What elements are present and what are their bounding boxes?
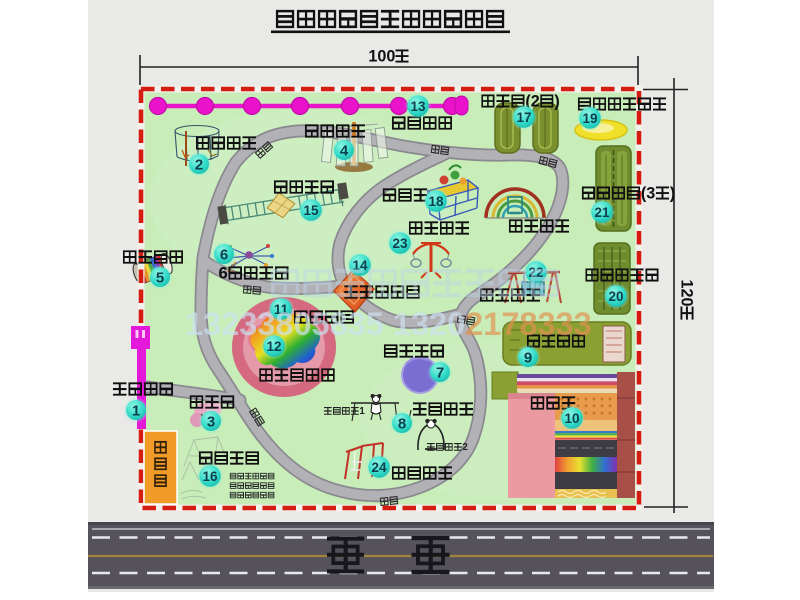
svg-text:19: 19 (582, 111, 597, 126)
svg-text:1: 1 (132, 402, 140, 419)
svg-text:): ) (554, 92, 559, 110)
svg-text:24: 24 (371, 460, 387, 475)
svg-text:4: 4 (340, 142, 349, 159)
svg-text:13: 13 (410, 99, 426, 114)
svg-text:10: 10 (564, 411, 579, 426)
svg-text:5: 5 (156, 269, 164, 286)
svg-text:9: 9 (524, 349, 532, 366)
svg-text:7: 7 (436, 364, 444, 381)
svg-text:120: 120 (678, 280, 696, 307)
svg-text:17: 17 (516, 110, 531, 125)
svg-text:23: 23 (392, 236, 408, 251)
svg-text:6: 6 (219, 264, 228, 283)
svg-text:2: 2 (462, 442, 467, 453)
svg-text:(3: (3 (641, 184, 655, 202)
svg-text:20: 20 (608, 289, 623, 304)
svg-text:6: 6 (220, 246, 228, 263)
svg-text:1: 1 (359, 406, 365, 417)
svg-text:16: 16 (202, 469, 218, 484)
svg-text:8: 8 (398, 415, 406, 432)
svg-text:2: 2 (195, 156, 203, 173)
svg-text:3: 3 (207, 413, 215, 430)
svg-text:13233805835 13202178333: 13233805835 13202178333 (185, 306, 592, 342)
svg-text:18: 18 (428, 194, 444, 209)
svg-text:15: 15 (303, 203, 319, 218)
svg-text:21: 21 (594, 205, 610, 220)
svg-text:): ) (670, 184, 675, 202)
svg-text:100: 100 (368, 47, 395, 65)
